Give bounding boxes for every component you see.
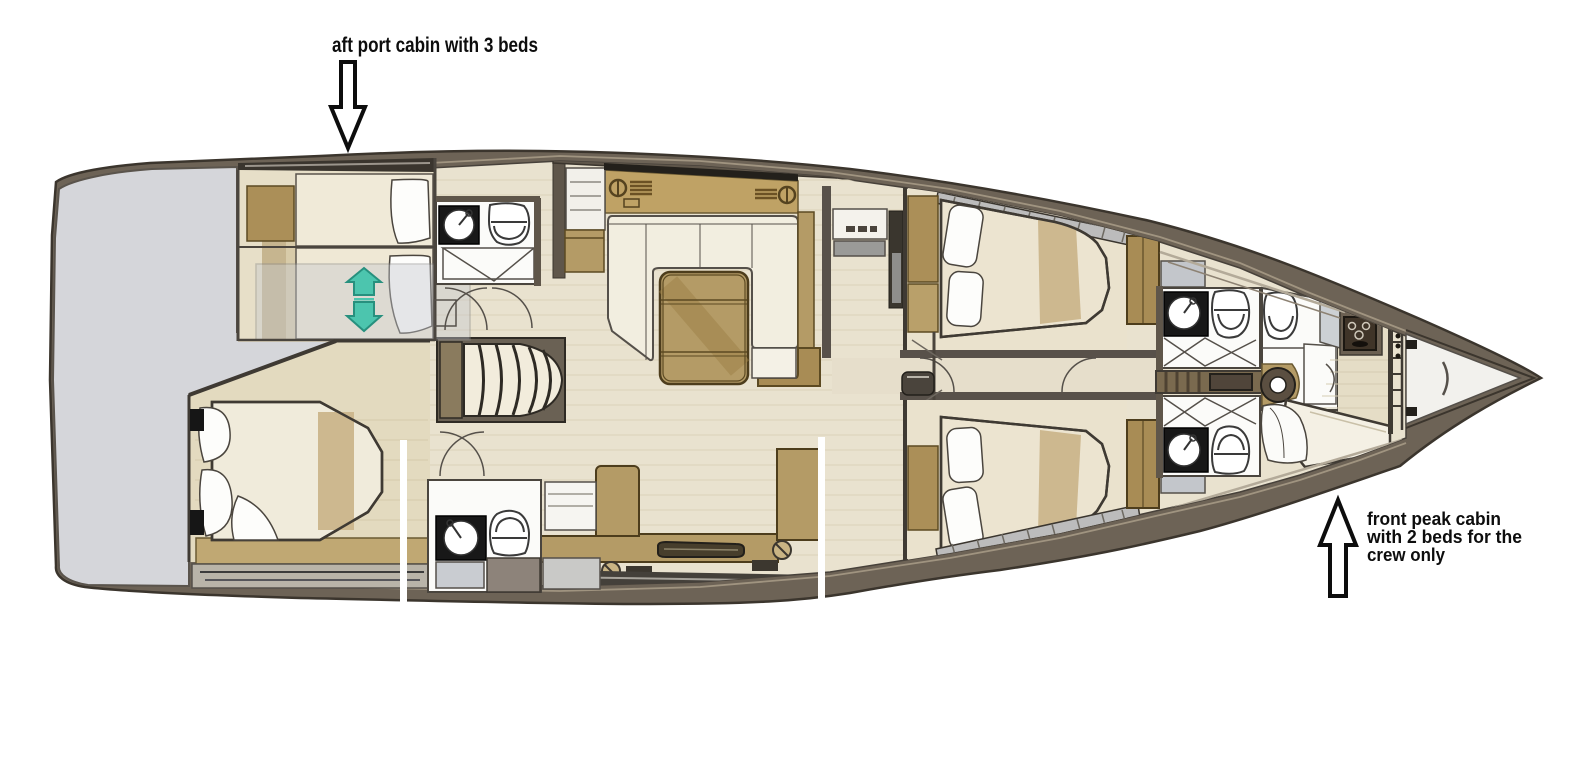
svg-text:aft port cabin with 3 beds: aft port cabin with 3 beds <box>332 34 538 57</box>
svg-text:crew only: crew only <box>1367 544 1446 565</box>
